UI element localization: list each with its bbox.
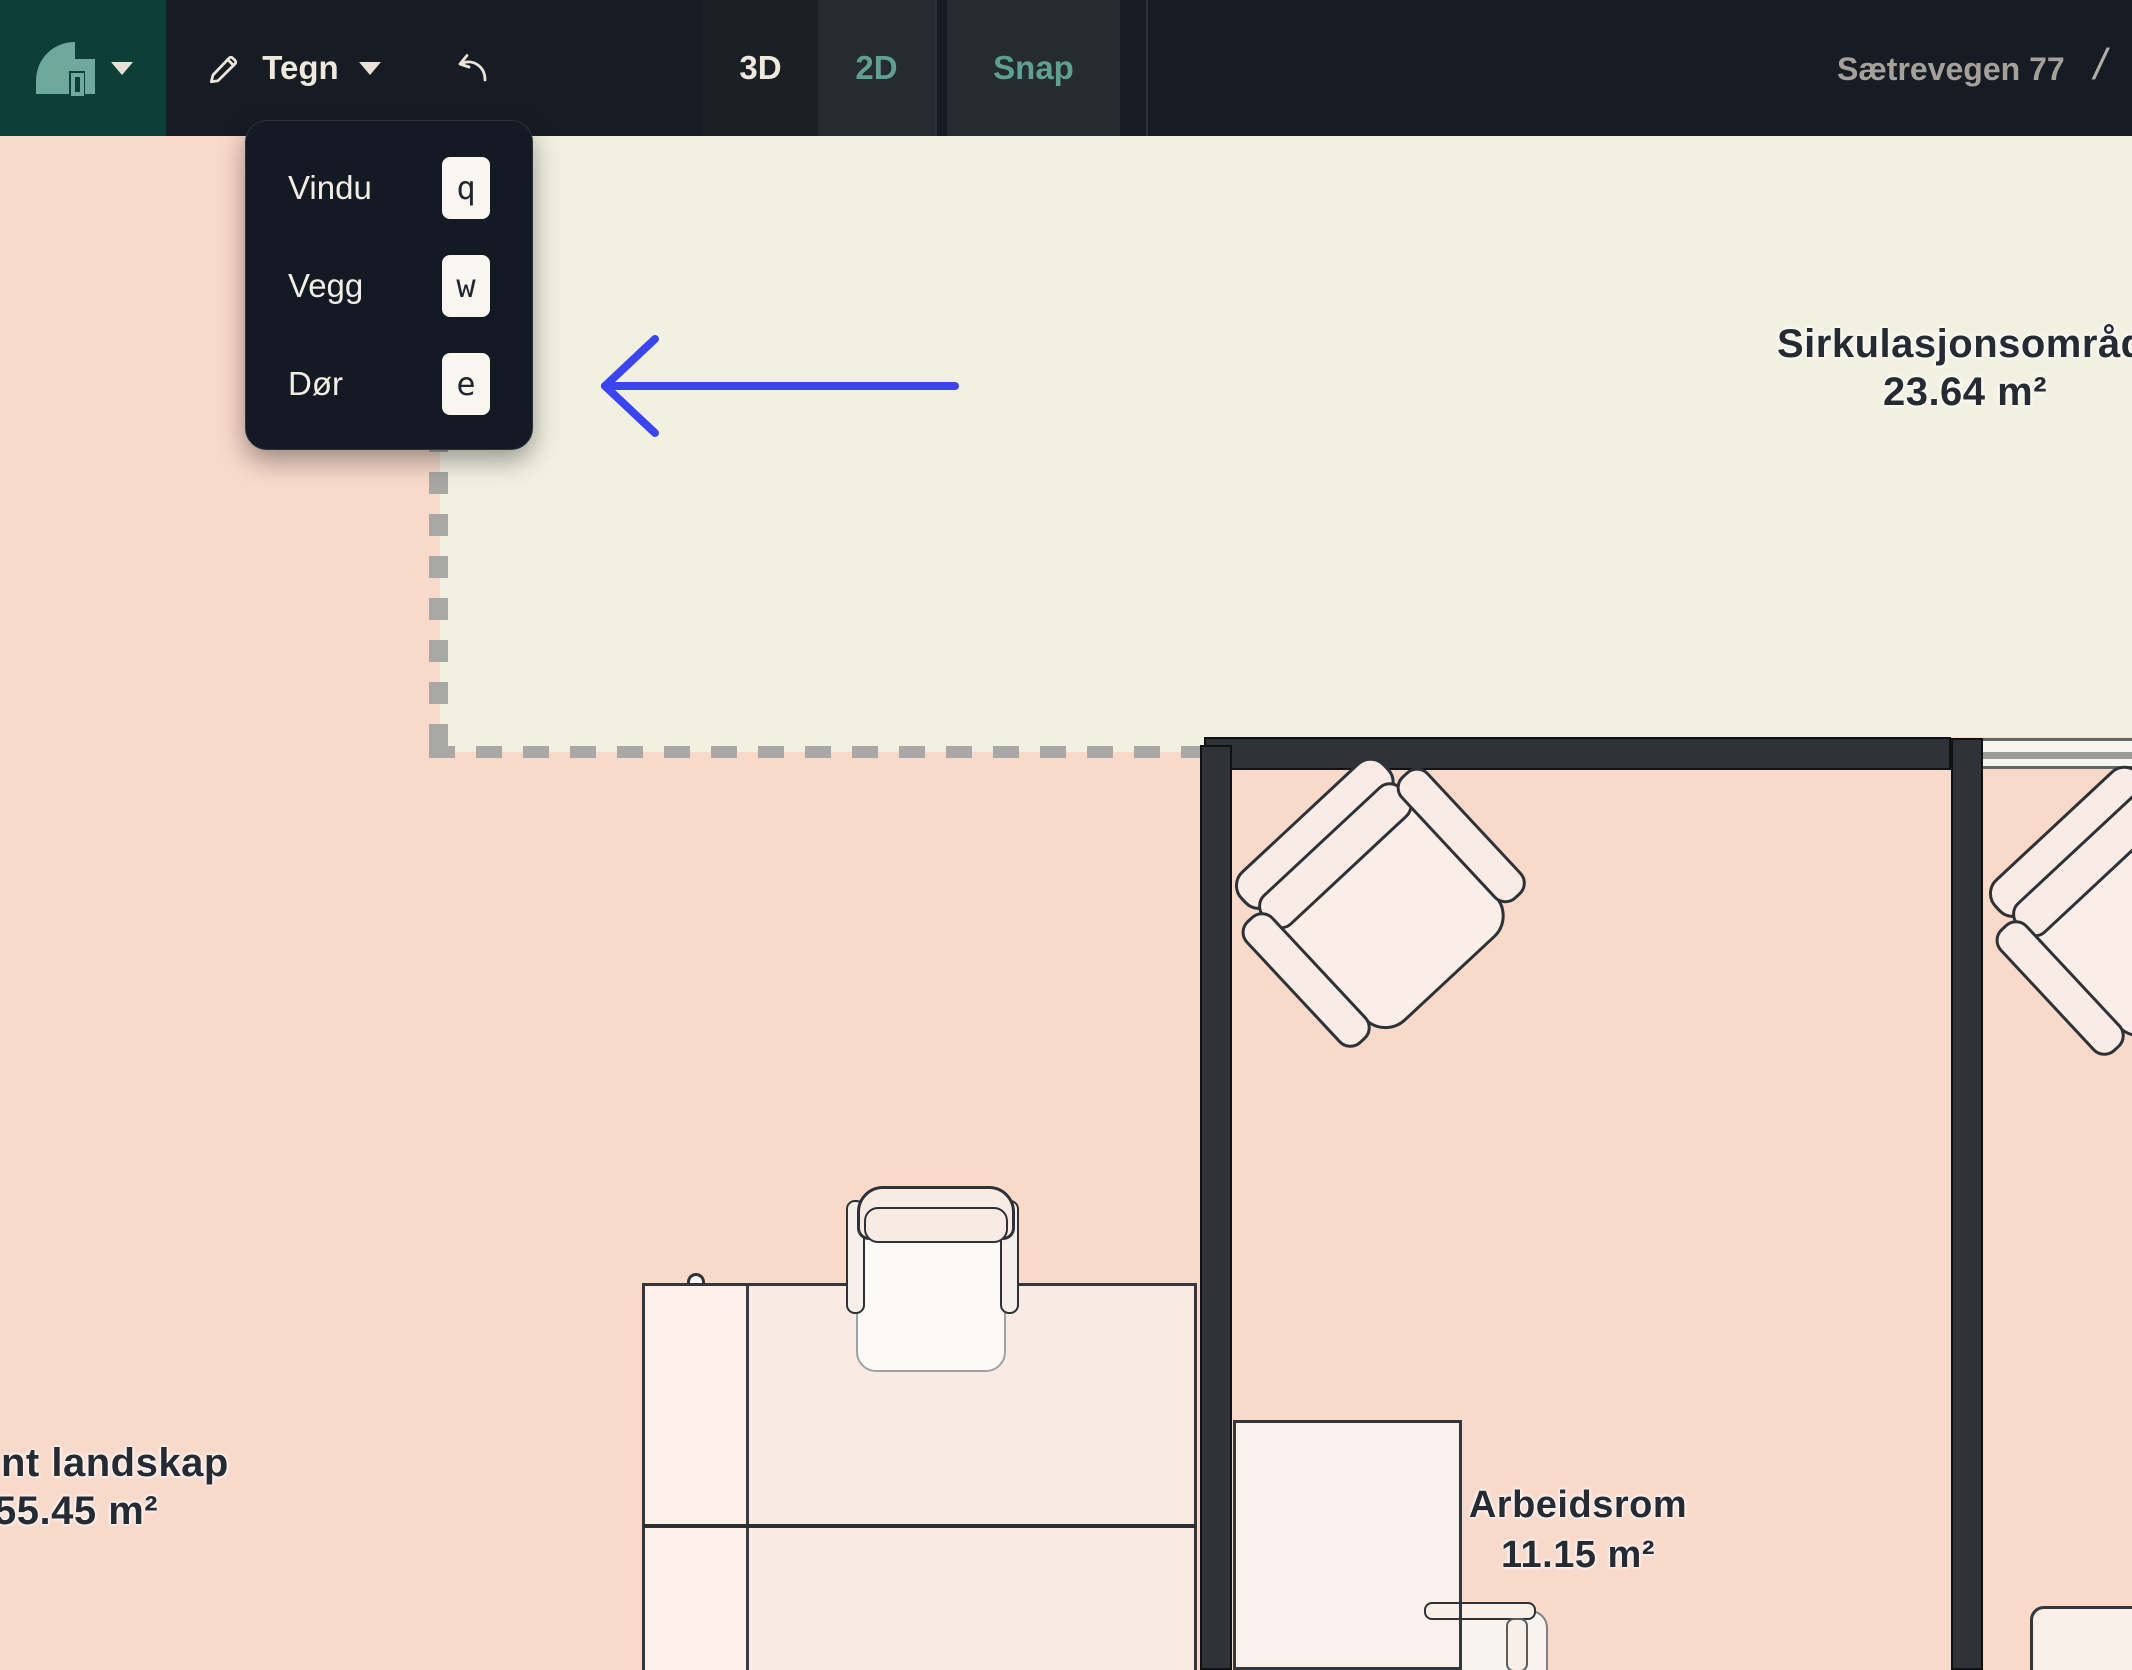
undo-icon: [452, 49, 492, 87]
toolbar: Tegn 3D 2D Snap Sætrevegen 77 /: [0, 0, 2132, 136]
menu-item-label: Vindu: [288, 169, 372, 207]
desk-grommet: [687, 1273, 705, 1283]
draw-tool-button[interactable]: Tegn: [186, 0, 401, 136]
toolbar-divider: [1146, 0, 1148, 136]
menu-item-vegg[interactable]: Vegg w: [288, 255, 490, 317]
shortcut-key-badge: e: [442, 353, 490, 415]
draw-caret-icon: [359, 62, 381, 75]
menu-item-label: Dør: [288, 365, 343, 403]
room-label-landscape-area: 55.45 m²: [0, 1489, 158, 1534]
view-3d-label: 3D: [739, 49, 781, 87]
view-3d-button[interactable]: 3D: [703, 0, 818, 136]
breadcrumb-separator: /: [2094, 40, 2106, 90]
dashed-boundary-horizontal[interactable]: [429, 746, 1204, 758]
pencil-icon: [206, 48, 242, 88]
wall-room-divider[interactable]: [1951, 738, 1983, 1670]
room-label-workroom-area: 11.15 m²: [1501, 1534, 1655, 1577]
window-glass-line: [1983, 752, 2132, 759]
snap-label: Snap: [993, 49, 1074, 87]
armchair-room2[interactable]: [1960, 738, 2132, 1091]
menu-item-vindu[interactable]: Vindu q: [288, 157, 490, 219]
menu-item-label: Vegg: [288, 267, 363, 305]
draw-tool-label: Tegn: [262, 49, 338, 87]
shortcut-key-badge: w: [442, 255, 490, 317]
room-label-circulation-name: Sirkulasjonsområde: [1777, 322, 2132, 367]
shortcut-key-badge: q: [442, 157, 490, 219]
project-name[interactable]: Sætrevegen 77: [1837, 51, 2065, 88]
roof-logo-icon: [33, 39, 99, 97]
view-2d-button[interactable]: 2D: [818, 0, 935, 136]
view-2d-label: 2D: [855, 49, 897, 87]
desk-divider-horizontal: [643, 1524, 1196, 1528]
room-label-landscape-name: nt landskap: [1, 1441, 229, 1486]
window-symbol[interactable]: [1983, 738, 2132, 769]
room-label-workroom-name: Arbeidsrom: [1469, 1484, 1687, 1527]
desk-edge-overlay: [1459, 1602, 1462, 1670]
office-chair-cushion[interactable]: [864, 1207, 1008, 1243]
annotation-arrow-icon: [588, 320, 973, 450]
armchair-room1[interactable]: [1206, 730, 1559, 1083]
desk-left-section: [645, 1286, 746, 1670]
app-logo-button[interactable]: [0, 0, 166, 136]
wall-top[interactable]: [1204, 737, 1951, 770]
logo-caret-icon: [111, 62, 133, 75]
office-chair-seat[interactable]: [856, 1236, 1006, 1372]
desk-divider-vertical: [746, 1285, 749, 1670]
draw-menu: Vindu q Vegg w Dør e: [245, 120, 533, 450]
undo-button[interactable]: [440, 0, 504, 136]
menu-item-dor[interactable]: Dør e: [288, 353, 490, 415]
desk-room2-partial[interactable]: [2030, 1606, 2132, 1670]
toolbar-divider: [935, 0, 937, 136]
workroom-chair-armrest[interactable]: [1506, 1618, 1528, 1670]
snap-toggle[interactable]: Snap: [947, 0, 1120, 136]
floorplan-app: Sirkulasjonsområde 23.64 m² nt landskap …: [0, 0, 2132, 1670]
room-label-circulation-area: 23.64 m²: [1883, 370, 2047, 415]
desk-workroom[interactable]: [1233, 1420, 1462, 1670]
